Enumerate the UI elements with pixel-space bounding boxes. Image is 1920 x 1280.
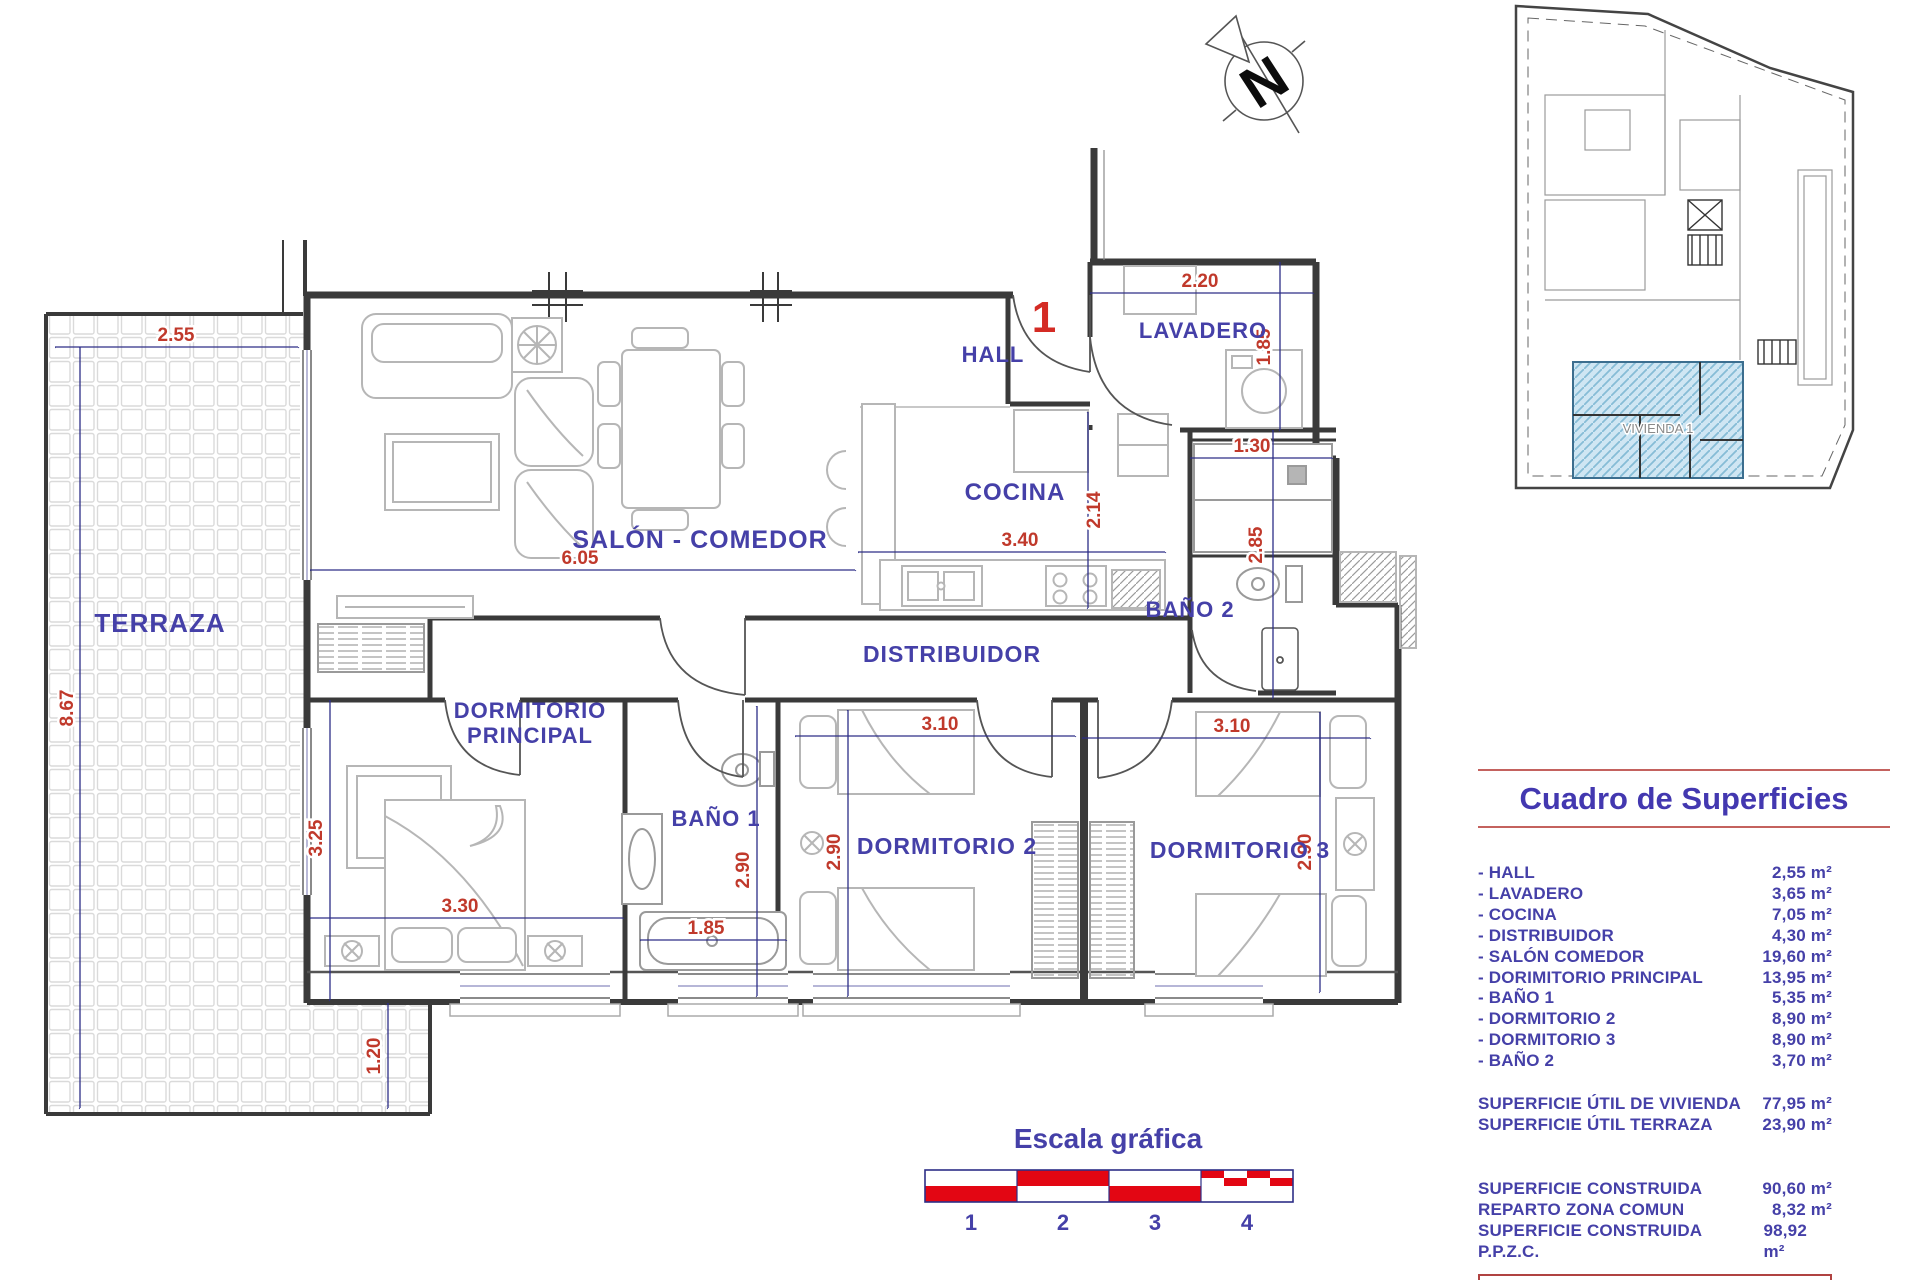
scale-tick-3: 3: [1149, 1210, 1161, 1235]
table-row: - LAVADERO3,65 m²: [1478, 884, 1890, 905]
surfaces-util-rows: SUPERFICIE ÚTIL DE VIVIENDA77,95 m² SUPE…: [1478, 1094, 1890, 1136]
dim-bano1-height: 2.90: [733, 852, 754, 889]
total-label: SUPERFICIE TOTAL: [1486, 1277, 1657, 1280]
radiator-east: [1400, 556, 1416, 648]
dim-dormppal-height: 3.25: [306, 819, 327, 856]
table-row: - BAÑO 15,35 m²: [1478, 988, 1890, 1009]
surfaces-table-title: Cuadro de Superficies: [1519, 781, 1848, 817]
dim-closet-width: 1.30: [1234, 436, 1271, 457]
label-bano1: BAÑO 1: [671, 806, 760, 831]
door-dorm2: [977, 700, 1052, 777]
scale-bar-blocks: [925, 1170, 1293, 1202]
dim-cocina-width: 3.40: [1002, 530, 1039, 551]
table-row: SUPERFICIE CONSTRUIDA90,60 m²: [1478, 1179, 1890, 1200]
table-row: - COCINA7,05 m²: [1478, 905, 1890, 926]
dim-terraza-height: 8.67: [57, 690, 78, 727]
dim-dorm2-width: 3.10: [922, 714, 959, 735]
label-terraza: TERRAZA: [94, 608, 225, 638]
door-salon: [660, 618, 745, 695]
label-dorm3: DORMITORIO 3: [1150, 837, 1330, 863]
surfaces-construida-rows: SUPERFICIE CONSTRUIDA90,60 m² REPARTO ZO…: [1478, 1179, 1890, 1263]
decor-fan: [512, 318, 562, 372]
total-value: 122,82 m²: [1742, 1277, 1824, 1280]
armchair: [515, 378, 593, 466]
dim-dorm3-width: 3.10: [1214, 716, 1251, 737]
north-compass: N: [1206, 16, 1305, 133]
label-distribuidor: DISTRIBUIDOR: [863, 641, 1041, 667]
table-row: SUPERFICIE ÚTIL DE VIVIENDA77,95 m²: [1478, 1094, 1890, 1115]
scale-bar: Escala gráfica 1 2 3 4: [925, 1123, 1293, 1235]
label-lavadero: LAVADERO: [1139, 318, 1267, 343]
windows-south: [450, 969, 1273, 1016]
sofa: [362, 314, 512, 398]
table-row: - DISTRIBUIDOR4,30 m²: [1478, 926, 1890, 947]
scale-tick-2: 2: [1057, 1210, 1069, 1235]
coffee-table: [385, 434, 499, 510]
stools: [827, 451, 846, 546]
sideboard: [337, 596, 473, 618]
dim-bano1-width: 1.85: [688, 918, 725, 939]
door-dorm3: [1098, 700, 1172, 778]
surfaces-room-rows: - HALL2,55 m² - LAVADERO3,65 m² - COCINA…: [1478, 863, 1890, 1072]
dim-dormppal-width: 3.30: [442, 896, 479, 917]
dim-bano2-height: 2.85: [1246, 526, 1267, 563]
dim-cocina-height: 2.14: [1084, 491, 1105, 528]
scale-bar-title: Escala gráfica: [1014, 1123, 1203, 1154]
surfaces-table: Cuadro de Superficies - HALL2,55 m² - LA…: [1478, 769, 1890, 1280]
table-row: - SALÓN COMEDOR19,60 m²: [1478, 947, 1890, 968]
label-dorm2: DORMITORIO 2: [857, 833, 1037, 859]
dining-table: [598, 328, 744, 530]
table-row: - BAÑO 23,70 m²: [1478, 1051, 1890, 1072]
table-row: REPARTO ZONA COMUN8,32 m²: [1478, 1200, 1890, 1221]
scale-bar-ticks: 1 2 3 4: [965, 1210, 1254, 1235]
table-row: SUPERFICIE ÚTIL TERRAZA23,90 m²: [1478, 1115, 1890, 1136]
toilet-bano2: [1237, 566, 1302, 602]
keyplan-unit-label: VIVIENDA 1: [1623, 421, 1694, 436]
scale-tick-4: 4: [1241, 1210, 1254, 1235]
dim-terraza-strip: 1.20: [364, 1038, 385, 1075]
table-row: - HALL2,55 m²: [1478, 863, 1890, 884]
label-unit-number: 1: [1032, 293, 1056, 342]
label-bano2: BAÑO 2: [1145, 597, 1234, 622]
door-lavadero: [1090, 337, 1172, 425]
window-dormppal-west: [300, 728, 314, 895]
dim-terraza-width: 2.55: [158, 325, 195, 346]
label-dormppal-2: PRINCIPAL: [467, 723, 593, 748]
table-row: - DORMITORIO 38,90 m²: [1478, 1030, 1890, 1051]
table-row: - DORMITORIO 28,90 m²: [1478, 1009, 1890, 1030]
furniture: [318, 266, 1416, 978]
shaft-hatch: [1340, 552, 1396, 602]
surfaces-total-row: SUPERFICIE TOTAL 122,82 m²: [1478, 1274, 1832, 1280]
dim-dorm2-height: 2.90: [824, 834, 845, 871]
table-row: - DORIMITORIO PRINCIPAL13,95 m²: [1478, 968, 1890, 989]
keyplan-highlight-unit: VIVIENDA 1: [1573, 362, 1743, 478]
table-row: SUPERFICIE CONSTRUIDA P.P.Z.C.98,92 m²: [1478, 1221, 1890, 1263]
label-cocina: COCINA: [965, 479, 1066, 506]
label-hall: HALL: [962, 342, 1025, 367]
floorplan-page: 2.55 8.67 1.20 6.05 3.25 3.30 1.85 2.90 …: [0, 0, 1920, 1280]
label-salon: SALÓN - COMEDOR: [572, 524, 827, 554]
kitchen-counter: [862, 404, 1168, 610]
window-salon-west: [300, 350, 314, 580]
surfaces-table-header: Cuadro de Superficies: [1478, 769, 1890, 828]
label-dormppal-1: DORMITORIO: [454, 698, 607, 723]
scale-tick-1: 1: [965, 1210, 977, 1235]
door-bano2: [1192, 628, 1298, 691]
keyplan: VIVIENDA 1: [1516, 6, 1853, 488]
dim-entrance-width: 2.20: [1182, 271, 1219, 292]
